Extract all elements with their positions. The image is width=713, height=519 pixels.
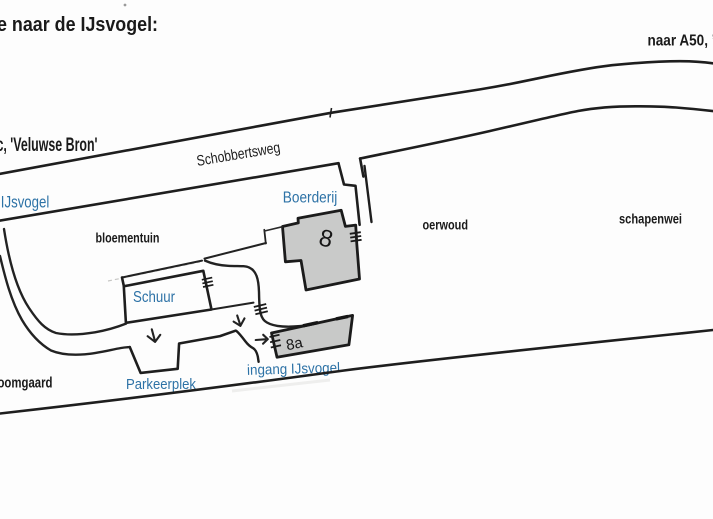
svg-text:bloementuin: bloementuin — [96, 230, 160, 246]
svg-text:boomgaard: boomgaard — [0, 375, 53, 391]
svg-text:oerwoud: oerwoud — [423, 217, 469, 233]
svg-text:Schuur: Schuur — [133, 289, 175, 306]
svg-text:e naar de IJsvogel:: e naar de IJsvogel: — [0, 14, 158, 36]
svg-text:naar A50, ’: naar A50, ’ — [648, 33, 713, 50]
svg-text:c, 'Veluwse Bron': c, 'Veluwse Bron' — [0, 135, 98, 156]
svg-text:schapenwei: schapenwei — [619, 210, 682, 226]
svg-text:Boerderij: Boerderij — [283, 189, 338, 206]
svg-text:IJsvogel: IJsvogel — [1, 193, 50, 211]
